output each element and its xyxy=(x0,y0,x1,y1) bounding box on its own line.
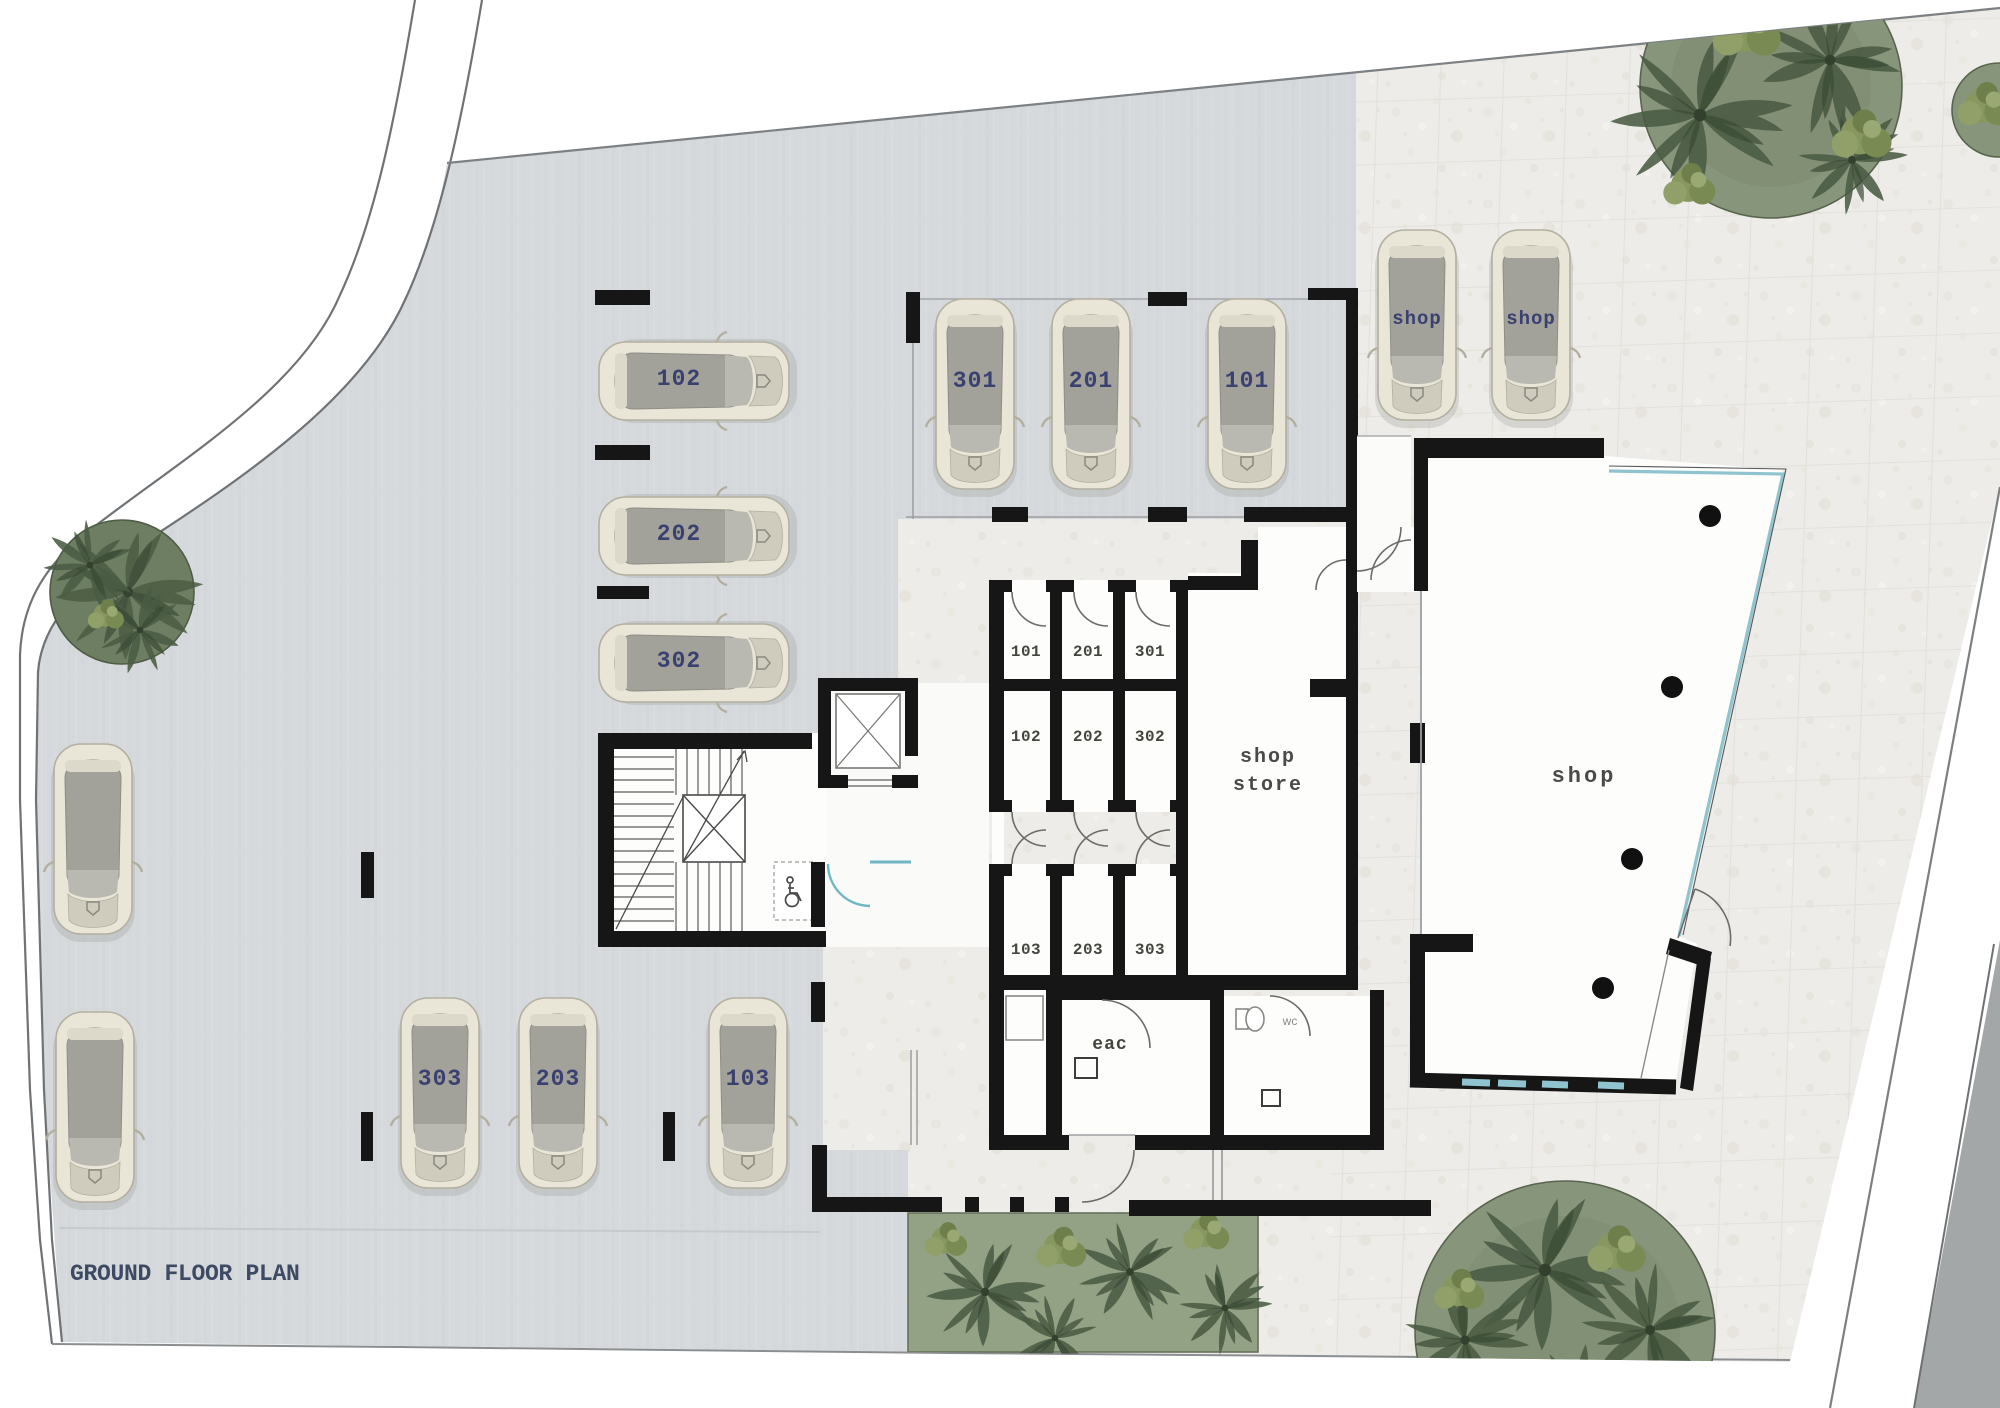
svg-text:302: 302 xyxy=(1135,728,1165,746)
svg-text:101: 101 xyxy=(1011,643,1041,661)
svg-text:shop: shop xyxy=(1506,308,1556,330)
svg-text:shop: shop xyxy=(1240,746,1296,769)
svg-text:103: 103 xyxy=(1011,941,1041,959)
svg-text:shop: shop xyxy=(1392,308,1442,330)
svg-text:store: store xyxy=(1233,774,1303,797)
svg-text:303: 303 xyxy=(418,1066,462,1092)
svg-text:102: 102 xyxy=(657,366,701,392)
svg-text:203: 203 xyxy=(1073,941,1103,959)
svg-text:203: 203 xyxy=(536,1066,580,1092)
svg-text:202: 202 xyxy=(1073,728,1103,746)
svg-text:eac: eac xyxy=(1092,1035,1127,1055)
svg-text:102: 102 xyxy=(1011,728,1041,746)
svg-text:301: 301 xyxy=(953,368,997,394)
svg-text:103: 103 xyxy=(726,1066,770,1092)
svg-text:301: 301 xyxy=(1135,643,1165,661)
svg-text:GROUND FLOOR PLAN: GROUND FLOOR PLAN xyxy=(70,1261,300,1287)
svg-text:302: 302 xyxy=(657,648,701,674)
svg-text:shop: shop xyxy=(1552,764,1617,789)
svg-text:201: 201 xyxy=(1073,643,1103,661)
svg-text:202: 202 xyxy=(657,521,701,547)
svg-text:303: 303 xyxy=(1135,941,1165,959)
svg-text:wc: wc xyxy=(1282,1014,1298,1028)
svg-text:101: 101 xyxy=(1225,368,1269,394)
svg-text:201: 201 xyxy=(1069,368,1113,394)
